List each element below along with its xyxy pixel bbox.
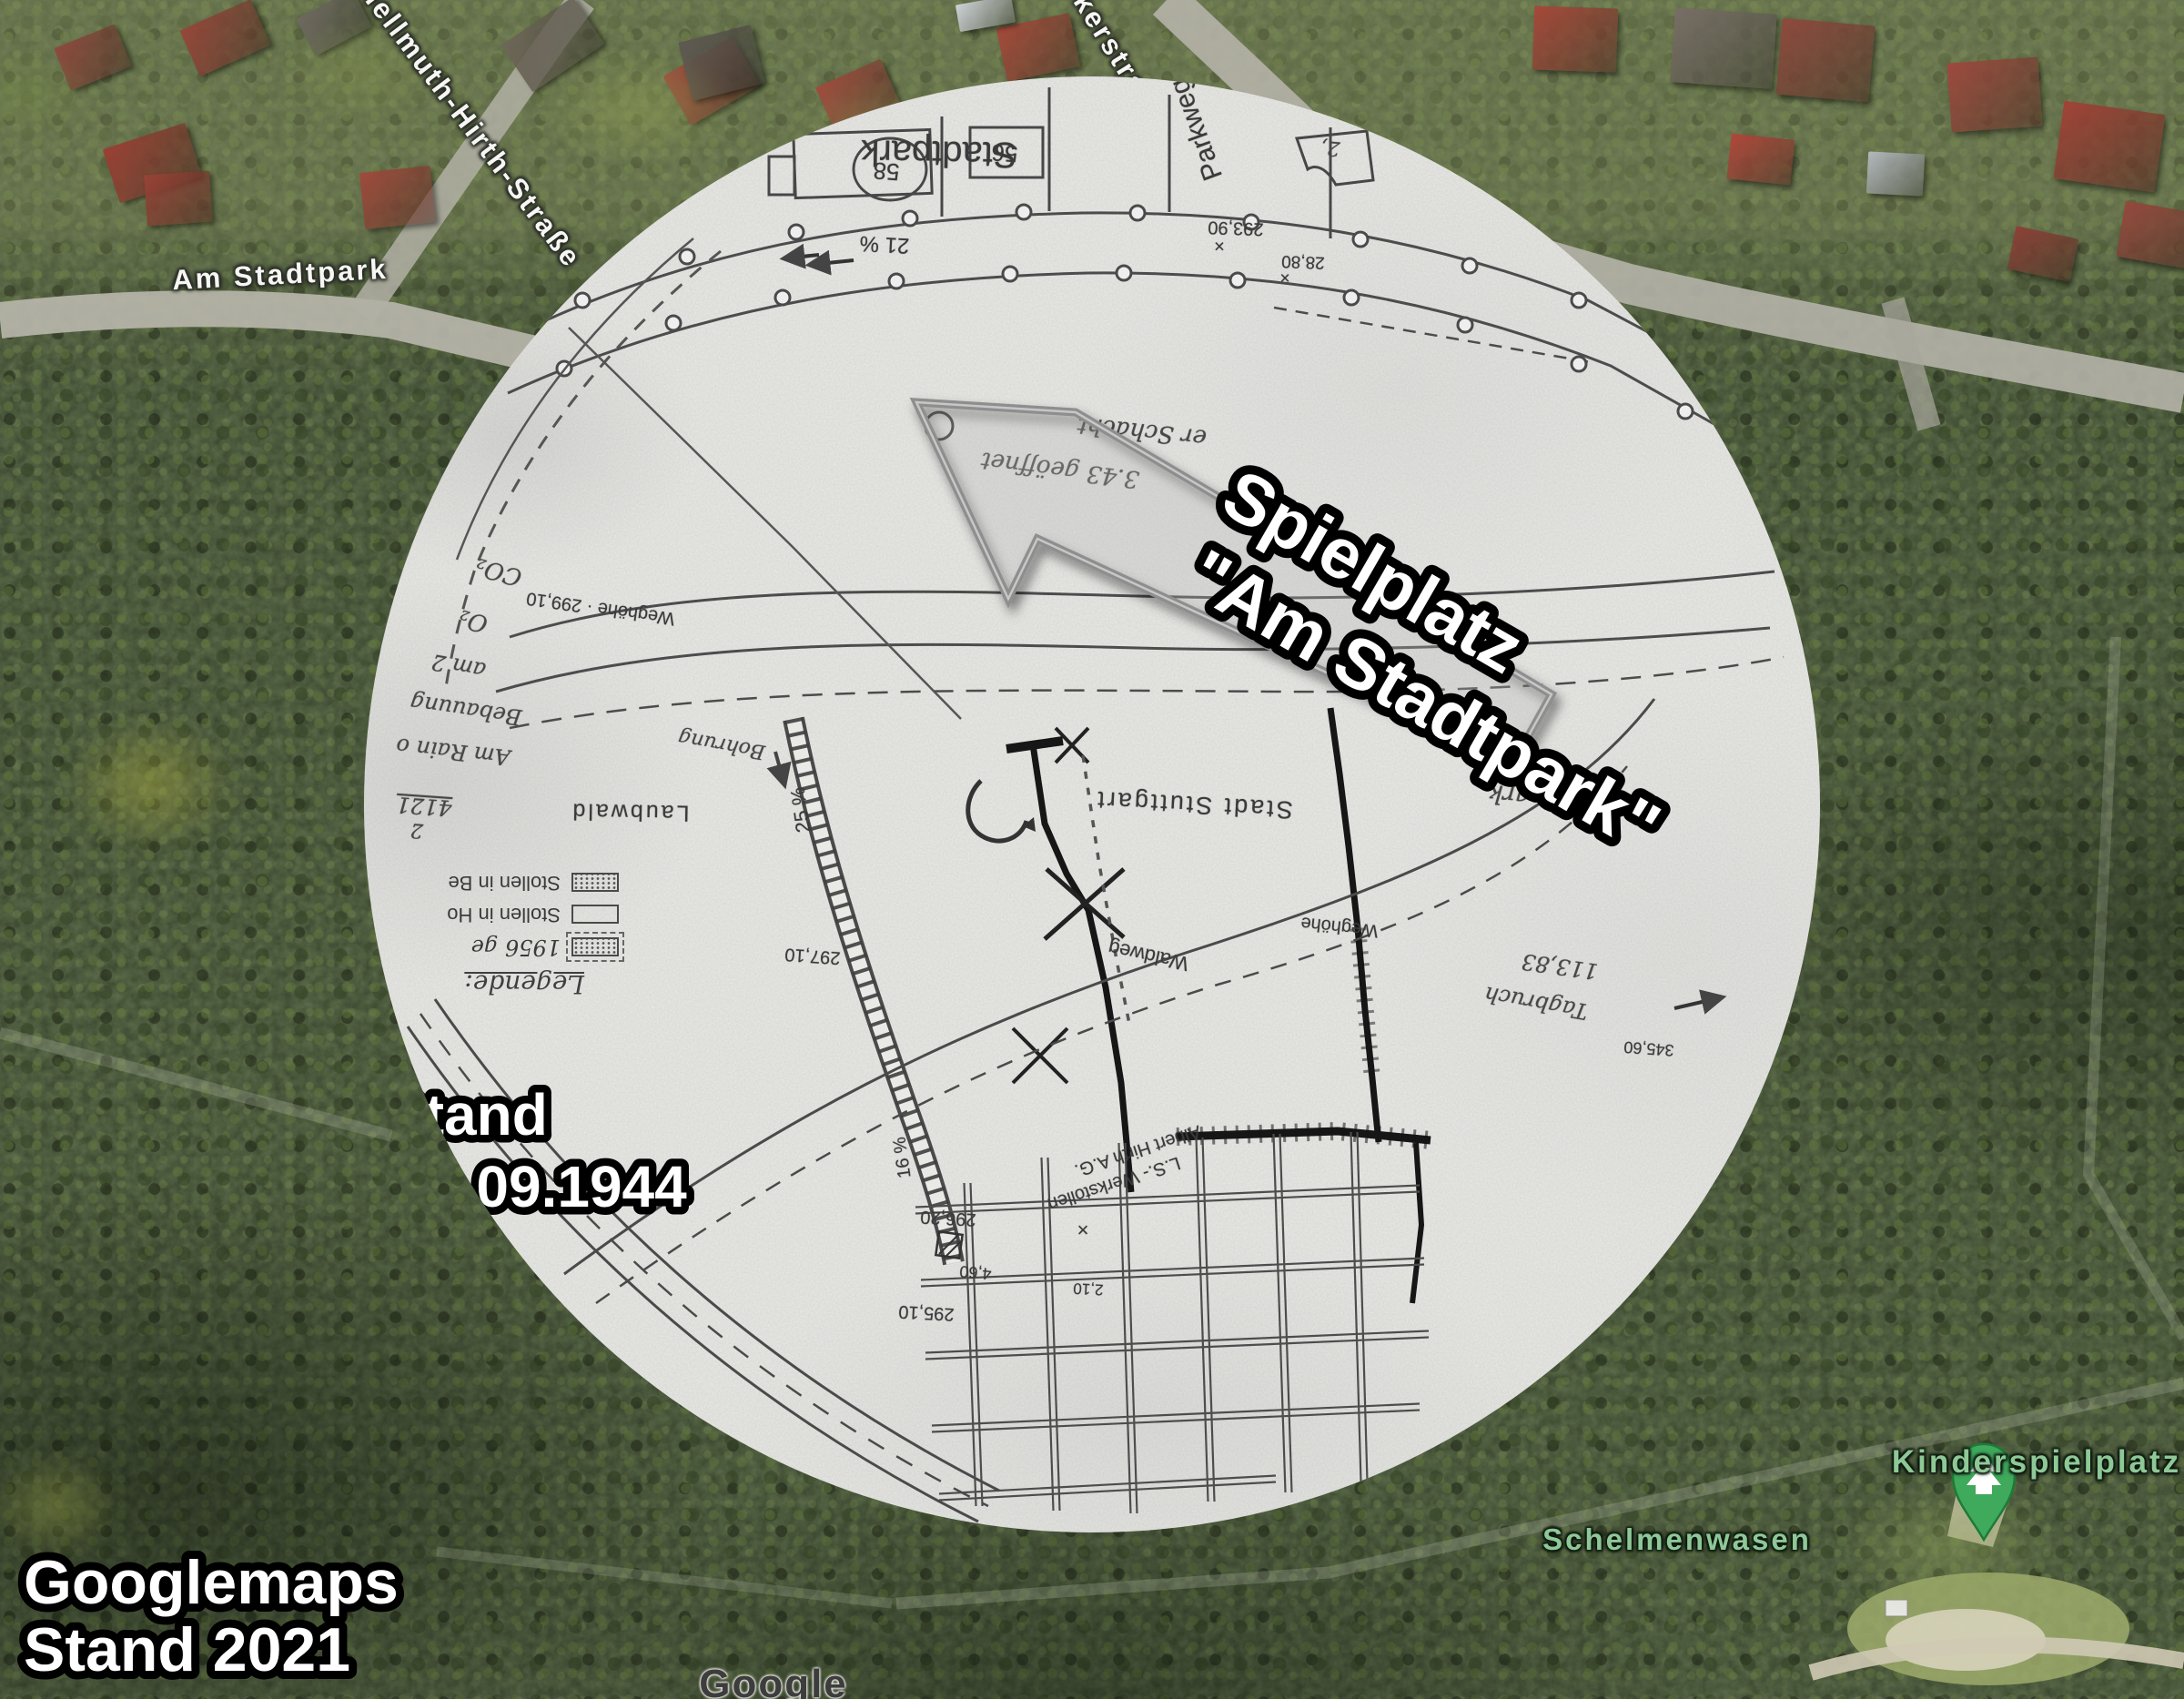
- historic-label: 2,10: [1073, 1279, 1104, 1299]
- legend-swatch-stippled: [571, 874, 619, 893]
- historic-label: ×: [1279, 269, 1289, 289]
- historic-label: 56: [990, 138, 1018, 168]
- google-watermark: Google: [699, 1662, 848, 1699]
- historic-label: 2,: [1319, 136, 1340, 160]
- legend-swatch-dashed: [571, 938, 619, 957]
- screenshot-root: Am StadtparkHellmuth-Hirth-Straßeckerstr…: [0, 0, 2184, 1699]
- legend: Legende: 1956 ge Stollen in Ho Stollen i…: [391, 863, 619, 1005]
- historic-map-overlay: Stand 1.09.1944 StadtparkParkweg21 %293,…: [364, 76, 1820, 1532]
- historic-label: 21 %: [859, 230, 910, 258]
- historic-label: Laubwald: [570, 797, 690, 825]
- historic-label: 293,90: [1208, 216, 1264, 238]
- legend-swatch-open: [571, 905, 619, 925]
- historic-label: 4,60: [959, 1261, 993, 1283]
- historic-label: 345,60: [1623, 1037, 1674, 1060]
- legend-item: Stollen in Be: [391, 871, 619, 895]
- historic-label: 296,20: [920, 1206, 976, 1229]
- legend-item: Stollen in Ho: [391, 903, 619, 926]
- legend-label: 1956 ge: [471, 935, 561, 960]
- historic-label: ×: [1214, 238, 1225, 258]
- historic-label: ×: [1077, 1219, 1089, 1242]
- poi-label[interactable]: Kinderspielplatz: [1892, 1444, 2181, 1481]
- legend-label: Stollen in Be: [448, 871, 561, 895]
- stand-line2: 1.09.1944: [428, 1154, 687, 1219]
- historic-label: 295,10: [898, 1300, 955, 1324]
- historic-label: 2: [409, 818, 424, 842]
- historic-label: 58: [872, 157, 900, 187]
- stand-line1: Stand: [386, 1082, 548, 1148]
- legend-label: Stollen in Ho: [447, 903, 561, 926]
- historic-label: 4121: [396, 792, 453, 821]
- historic-label: 297,10: [784, 943, 842, 967]
- legend-heading: Legende:: [391, 969, 584, 999]
- legend-item: 1956 ge: [391, 935, 619, 960]
